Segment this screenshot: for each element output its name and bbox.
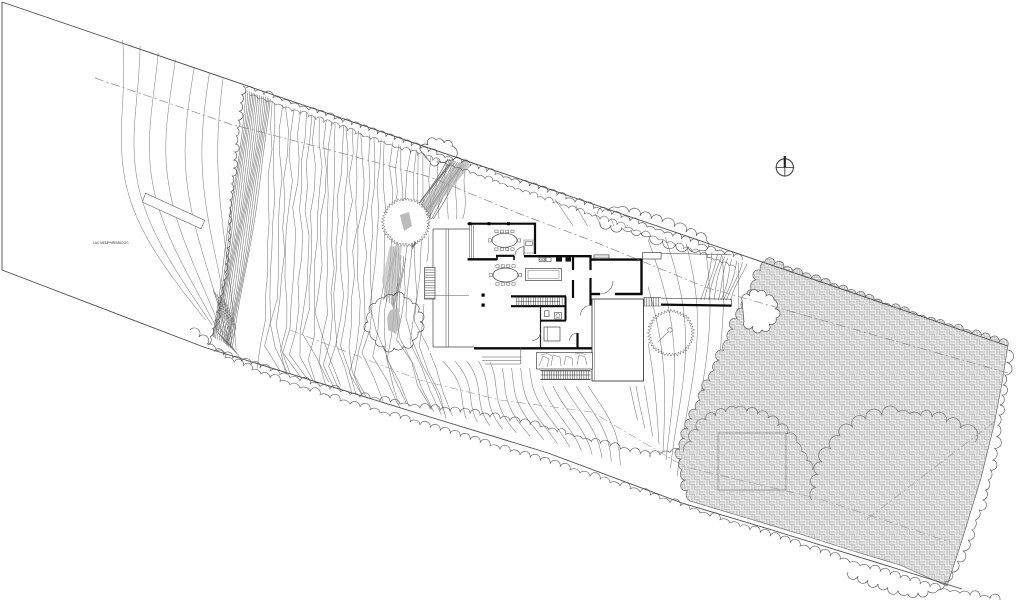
svg-text:LAC MEMPHREMAGOG: LAC MEMPHREMAGOG — [93, 241, 129, 245]
